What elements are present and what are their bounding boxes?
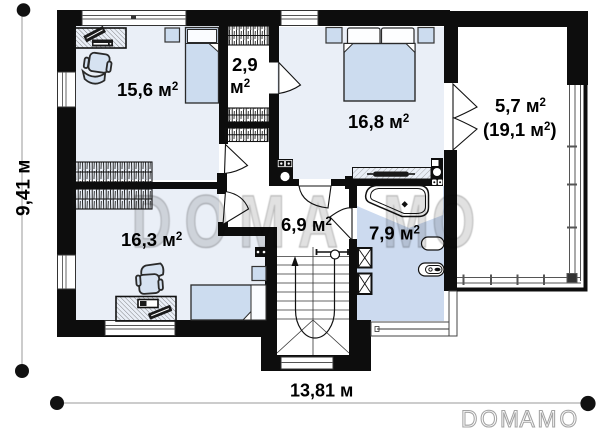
svg-text:13,81 м: 13,81 м (290, 381, 353, 401)
svg-text:M: M (538, 405, 557, 432)
svg-text:2,9: 2,9 (232, 54, 258, 75)
svg-text:O: O (560, 405, 578, 432)
svg-text:O: O (480, 405, 498, 432)
svg-text:A: A (298, 180, 338, 263)
svg-text:O: O (185, 180, 228, 263)
svg-text:D: D (132, 180, 172, 263)
svg-text:D: D (461, 405, 477, 432)
svg-text:O: O (432, 180, 475, 263)
svg-text:M: M (500, 405, 519, 432)
svg-text:15,6 м2: 15,6 м2 (117, 79, 178, 100)
svg-text:9,41 м: 9,41 м (14, 160, 35, 216)
svg-text:A: A (520, 405, 536, 432)
svg-text:M: M (239, 180, 285, 263)
svg-text:5,7 м2: 5,7 м2 (495, 95, 546, 116)
svg-text:M: M (383, 180, 429, 263)
svg-text:16,8 м2: 16,8 м2 (348, 111, 409, 132)
